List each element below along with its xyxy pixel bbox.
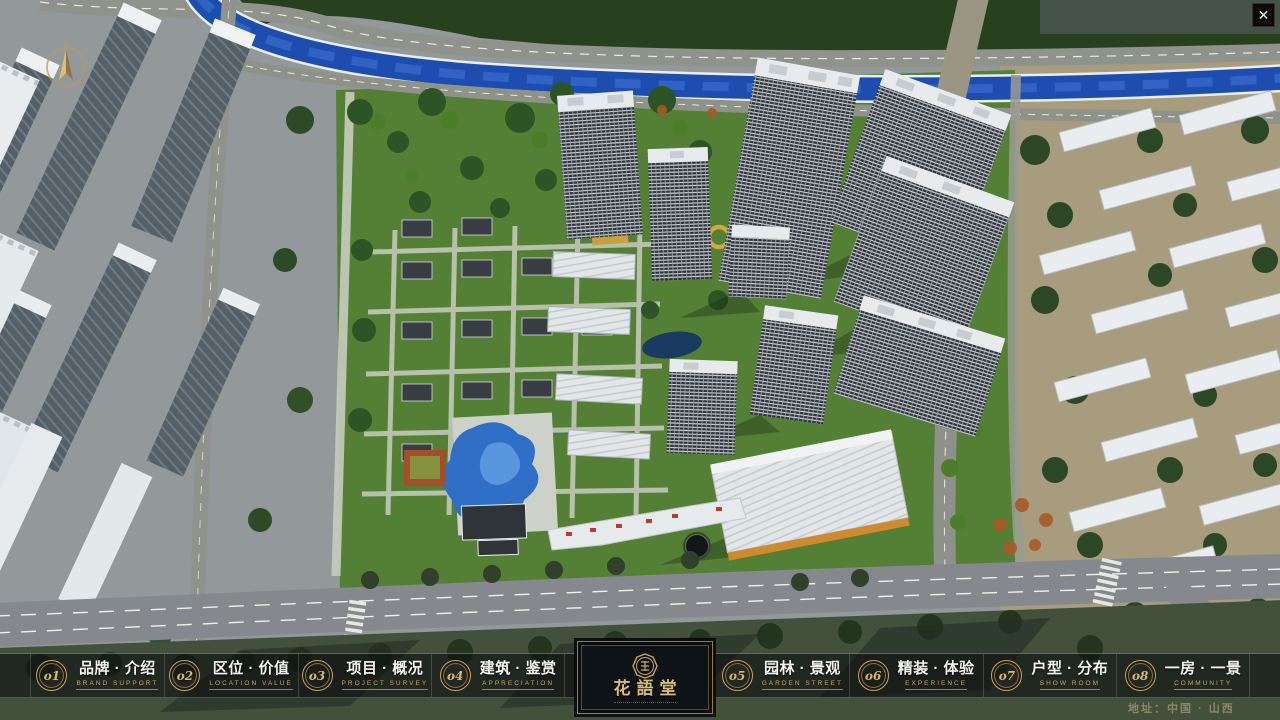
- nav-sublabel: GARDEN STREET: [762, 680, 843, 690]
- nav-label: 精装 · 体验: [898, 661, 975, 678]
- nav-sublabel: BRAND SUPPORT: [76, 680, 158, 690]
- nav-label: 建筑 · 鉴赏: [480, 661, 557, 678]
- brand-panel[interactable]: 花語堂: [577, 641, 713, 714]
- nav-item-floorplan[interactable]: o7 户型 · 分布SHOW ROOM: [983, 654, 1117, 697]
- nav-number-badge: o6: [858, 660, 889, 691]
- nav-number-badge: o4: [440, 660, 471, 691]
- nav-item-interior[interactable]: o6 精装 · 体验EXPERIENCE: [849, 654, 983, 697]
- nav-number-badge: o5: [722, 660, 753, 691]
- nav-item-architecture[interactable]: o4 建筑 · 鉴赏APPRECIATION: [431, 654, 565, 697]
- nav-number-badge: o8: [1125, 660, 1156, 691]
- nav-item-garden[interactable]: o5 园林 · 景观GARDEN STREET: [715, 654, 849, 697]
- nav-label: 项目 · 概况: [346, 661, 423, 678]
- nav-sublabel: APPRECIATION: [482, 680, 554, 690]
- compass-north-icon: [42, 40, 90, 92]
- masterplan-render: [0, 0, 1280, 720]
- nav-item-location[interactable]: o2 区位 · 价值LOCATION VALUE: [164, 654, 298, 697]
- nav-item-community[interactable]: o8 一房 · 一景COMMUNITY: [1116, 654, 1250, 697]
- nav-number-badge: o3: [302, 660, 333, 691]
- nav-item-project[interactable]: o3 项目 · 概况PROJECT SURVEY: [298, 654, 432, 697]
- nav-number-badge: o7: [991, 660, 1022, 691]
- nav-sublabel: COMMUNITY: [1174, 680, 1232, 690]
- nav-number-badge: o2: [169, 660, 200, 691]
- nav-label: 区位 · 价值: [213, 661, 290, 678]
- nav-label: 园林 · 景观: [764, 661, 841, 678]
- close-button[interactable]: ✕: [1252, 3, 1275, 27]
- brand-subtitle-rule: [614, 702, 676, 703]
- brand-name: 花語堂: [608, 681, 683, 698]
- nav-sublabel: EXPERIENCE: [905, 680, 967, 690]
- nav-item-brand[interactable]: o1 品牌 · 介绍BRAND SUPPORT: [30, 654, 164, 697]
- nav-sublabel: LOCATION VALUE: [209, 680, 292, 690]
- presentation-stage: ✕ o1 品牌 · 介绍BRAND SUPPORT o2 区位 · 价值LOCA…: [0, 0, 1280, 720]
- nav-label: 一房 · 一景: [1165, 661, 1242, 678]
- nav-sublabel: SHOW ROOM: [1040, 680, 1100, 690]
- nav-label: 户型 · 分布: [1031, 661, 1108, 678]
- nav-label: 品牌 · 介绍: [79, 661, 156, 678]
- nav-sublabel: PROJECT SURVEY: [342, 680, 429, 690]
- nav-number-badge: o1: [36, 660, 67, 691]
- brand-seal-icon: [632, 653, 658, 679]
- project-address: 地址：中国 · 山西: [1128, 700, 1235, 716]
